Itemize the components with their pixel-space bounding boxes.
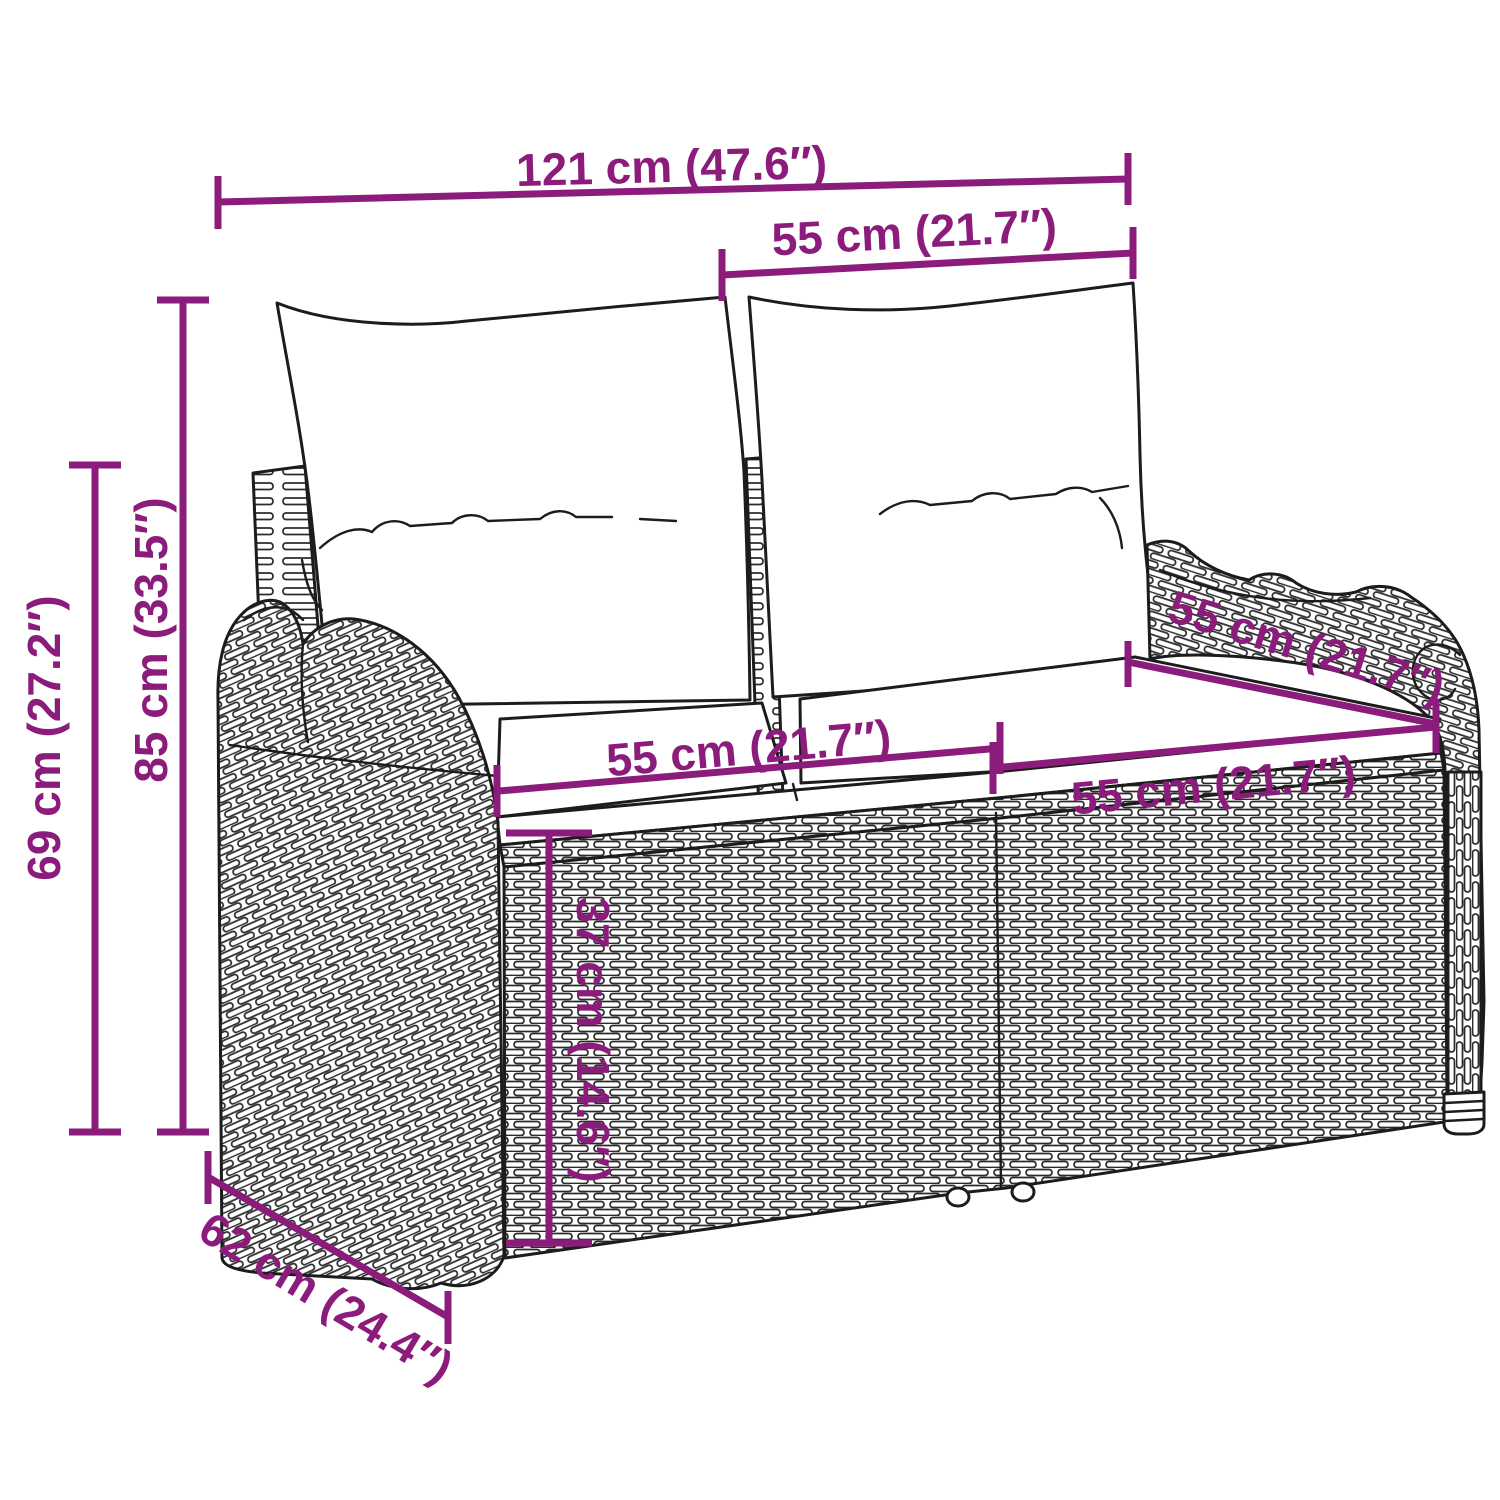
dim-seat-height-label: 37 cm (14.6″) <box>567 897 619 1182</box>
dim-frame-height-label: 69 cm (27.2″) <box>18 595 70 880</box>
dim-total-height-label: 85 cm (33.5″) <box>125 497 177 782</box>
armrest-left <box>218 600 504 1288</box>
dim-back-cushion-width: 55 cm (21.7″) <box>722 199 1133 301</box>
bench-foot-center-right <box>1012 1183 1034 1201</box>
armrest-right-front-column <box>1448 772 1481 1094</box>
dim-overall-width-label: 121 cm (47.6″) <box>515 136 827 196</box>
back-cushion-right <box>749 283 1152 697</box>
dim-total-height: 85 cm (33.5″) <box>125 300 209 1132</box>
dim-frame-height: 69 cm (27.2″) <box>18 465 121 1132</box>
bench-dimension-diagram: 121 cm (47.6″) 55 cm (21.7″) 85 cm (33.5… <box>0 0 1500 1500</box>
bench-foot-right-block <box>1444 1092 1484 1134</box>
dim-back-cushion-width-label: 55 cm (21.7″) <box>770 199 1058 266</box>
bench-foot-center-left <box>947 1188 969 1206</box>
diagram-canvas: 121 cm (47.6″) 55 cm (21.7″) 85 cm (33.5… <box>0 0 1500 1500</box>
